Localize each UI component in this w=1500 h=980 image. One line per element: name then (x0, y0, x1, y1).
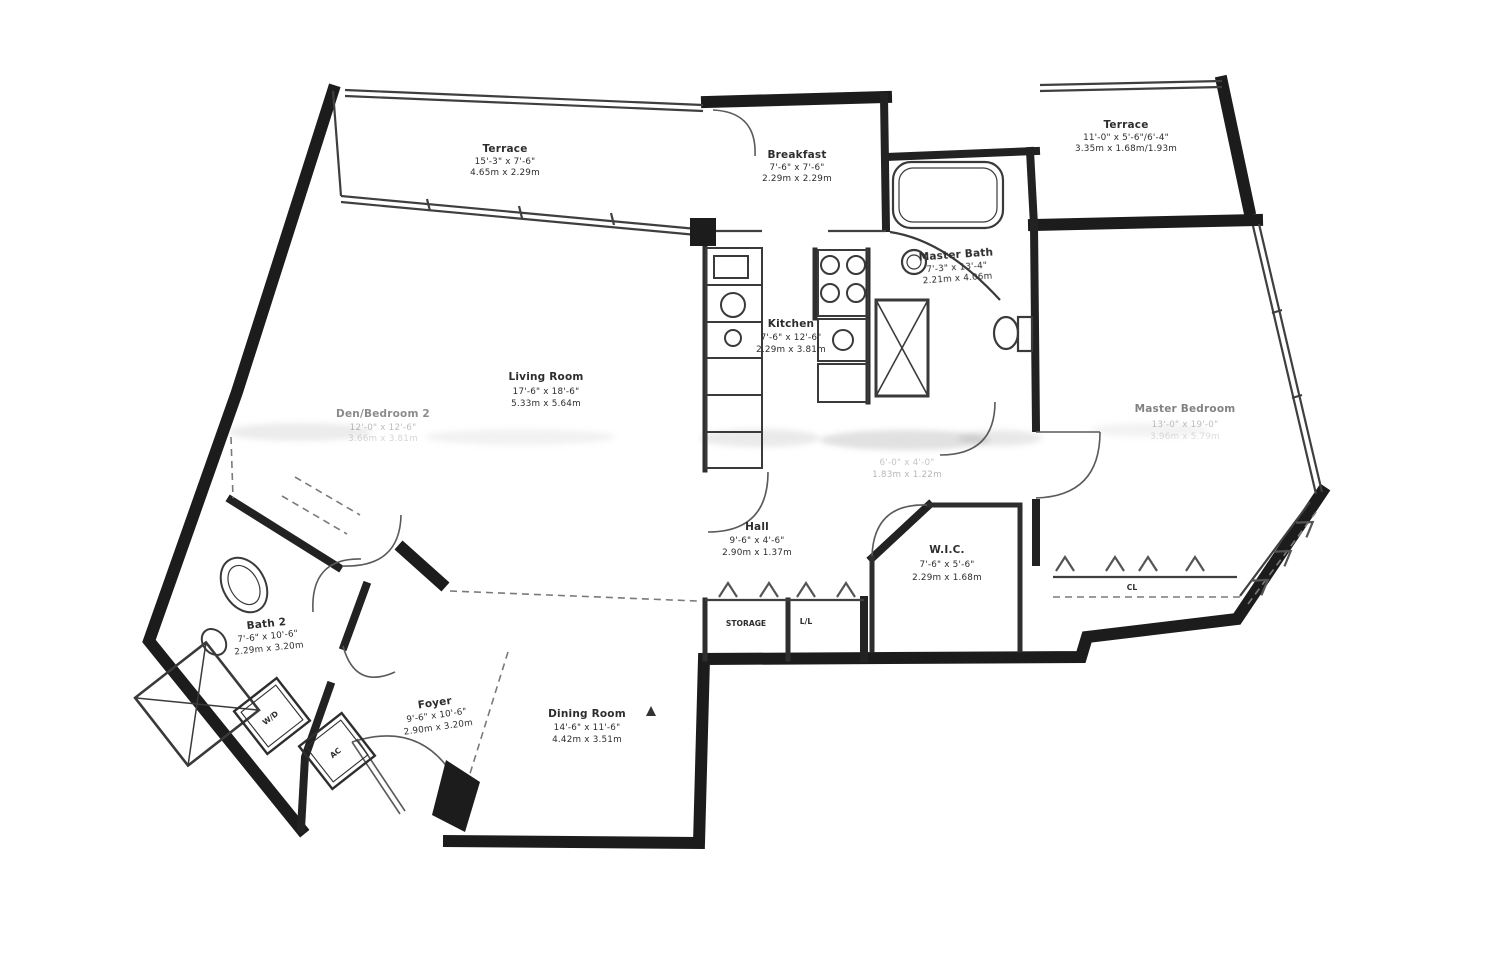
hall-name: Hall (745, 521, 769, 533)
living-room-dims-m: 5.33m x 5.64m (511, 399, 581, 409)
label-bath2: Bath 2 7'-6" x 10'-6" 2.29m x 3.20m (231, 614, 304, 657)
label-hall: Hall 9'-6" x 4'-6" 2.90m x 1.37m (722, 521, 792, 558)
dining-room-name: Dining Room (548, 708, 626, 720)
master-bedroom-name: Master Bedroom (1135, 403, 1236, 415)
terrace-left-dims-m: 4.65m x 2.29m (470, 168, 540, 178)
label-kitchen: Kitchen 7'-6" x 12'-6" 2.29m x 3.81m (756, 318, 826, 355)
wic-dims-m: 2.29m x 1.68m (912, 573, 982, 583)
hall-nook-dims-m: 1.83m x 1.22m (872, 470, 942, 480)
label-terrace-right: Terrace 11'-0" x 5'-6"/6'-4" 3.35m x 1.6… (1075, 119, 1177, 154)
bath2-sink-icon (211, 549, 276, 620)
kitchen-sink-icon (833, 330, 853, 350)
hall-nook-dims-ft: 6'-0" x 4'-0" (879, 458, 934, 468)
living-room-dims-ft: 17'-6" x 18'-6" (513, 387, 580, 397)
hall-dims-m: 2.90m x 1.37m (722, 548, 792, 558)
bedroom2-dims-ft: 12'-0" x 12'-6" (350, 423, 417, 433)
closet-label: CL (1127, 583, 1138, 592)
wic-dims-ft: 7'-6" x 5'-6" (919, 560, 974, 570)
terrace-left-dims-ft: 15'-3" x 7'-6" (475, 157, 536, 167)
ac-label: AC (328, 746, 343, 760)
terrace-right-dims-ft: 11'-0" x 5'-6"/6'-4" (1083, 133, 1169, 143)
sink-icon (721, 293, 745, 317)
linen-label: L/L (800, 617, 813, 626)
toilet-icon (994, 317, 1018, 349)
floor-plan-page: Terrace 15'-3" x 7'-6" 4.65m x 2.29m Bre… (0, 0, 1500, 980)
label-dining-room: Dining Room 14'-6" x 11'-6" 4.42m x 3.51… (548, 708, 626, 745)
label-bedroom2: Den/Bedroom 2 12'-0" x 12'-6" 3.66m x 3.… (336, 408, 430, 444)
living-room-name: Living Room (508, 371, 583, 383)
terrace-right-dims-m: 3.35m x 1.68m/1.93m (1075, 144, 1177, 154)
dining-room-dims-ft: 14'-6" x 11'-6" (554, 723, 621, 733)
hall-dims-ft: 9'-6" x 4'-6" (729, 536, 784, 546)
label-master-bedroom: Master Bedroom 13'-0" x 19'-0" 3.96m x 5… (1135, 403, 1236, 442)
terrace-right-name: Terrace (1103, 119, 1148, 131)
dining-marker-triangle (646, 706, 656, 716)
breakfast-dims-ft: 7'-6" x 7'-6" (769, 163, 824, 173)
exterior-walls (149, 82, 1322, 843)
kitchen-dims-ft: 7'-6" x 12'-6" (761, 333, 822, 343)
label-breakfast: Breakfast 7'-6" x 7'-6" 2.29m x 2.29m (762, 149, 832, 184)
wic-name: W.I.C. (929, 544, 965, 556)
storage-label: STORAGE (726, 619, 766, 628)
bath2-toilet-icon (197, 624, 232, 660)
kitchen-name: Kitchen (768, 318, 814, 330)
label-living-room: Living Room 17'-6" x 18'-6" 5.33m x 5.64… (508, 371, 583, 409)
label-hall-nook: 6'-0" x 4'-0" 1.83m x 1.22m (872, 458, 942, 480)
bathtub-icon (893, 162, 1003, 228)
label-wic: W.I.C. 7'-6" x 5'-6" 2.29m x 1.68m (912, 544, 982, 583)
floor-plan-drawing: Terrace 15'-3" x 7'-6" 4.65m x 2.29m Bre… (0, 0, 1500, 980)
refrigerator-icon (818, 364, 868, 402)
kitchen-dims-m: 2.29m x 3.81m (756, 345, 826, 355)
master-bedroom-dims-m: 3.96m x 5.79m (1150, 432, 1220, 442)
bedroom2-name: Den/Bedroom 2 (336, 408, 430, 420)
dining-room-dims-m: 4.42m x 3.51m (552, 735, 622, 745)
label-foyer: Foyer 9'-6" x 10'-6" 2.90m x 3.20m (400, 692, 474, 737)
washer-dryer-label: W/D (261, 709, 280, 727)
label-master-bath: Master Bath 7'-3" x 13'-4" 2.21m x 4.06m (918, 246, 995, 286)
stove-icon (818, 250, 868, 316)
breakfast-name: Breakfast (767, 149, 826, 161)
label-terrace-left: Terrace 15'-3" x 7'-6" 4.65m x 2.29m (470, 143, 540, 178)
master-bedroom-dims-ft: 13'-0" x 19'-0" (1152, 420, 1219, 430)
bedroom2-dims-m: 3.66m x 3.81m (348, 434, 418, 444)
entry-wall-wedge (432, 760, 480, 832)
terrace-left-name: Terrace (482, 143, 527, 155)
wall-block (690, 218, 716, 246)
breakfast-dims-m: 2.29m x 2.29m (762, 174, 832, 184)
